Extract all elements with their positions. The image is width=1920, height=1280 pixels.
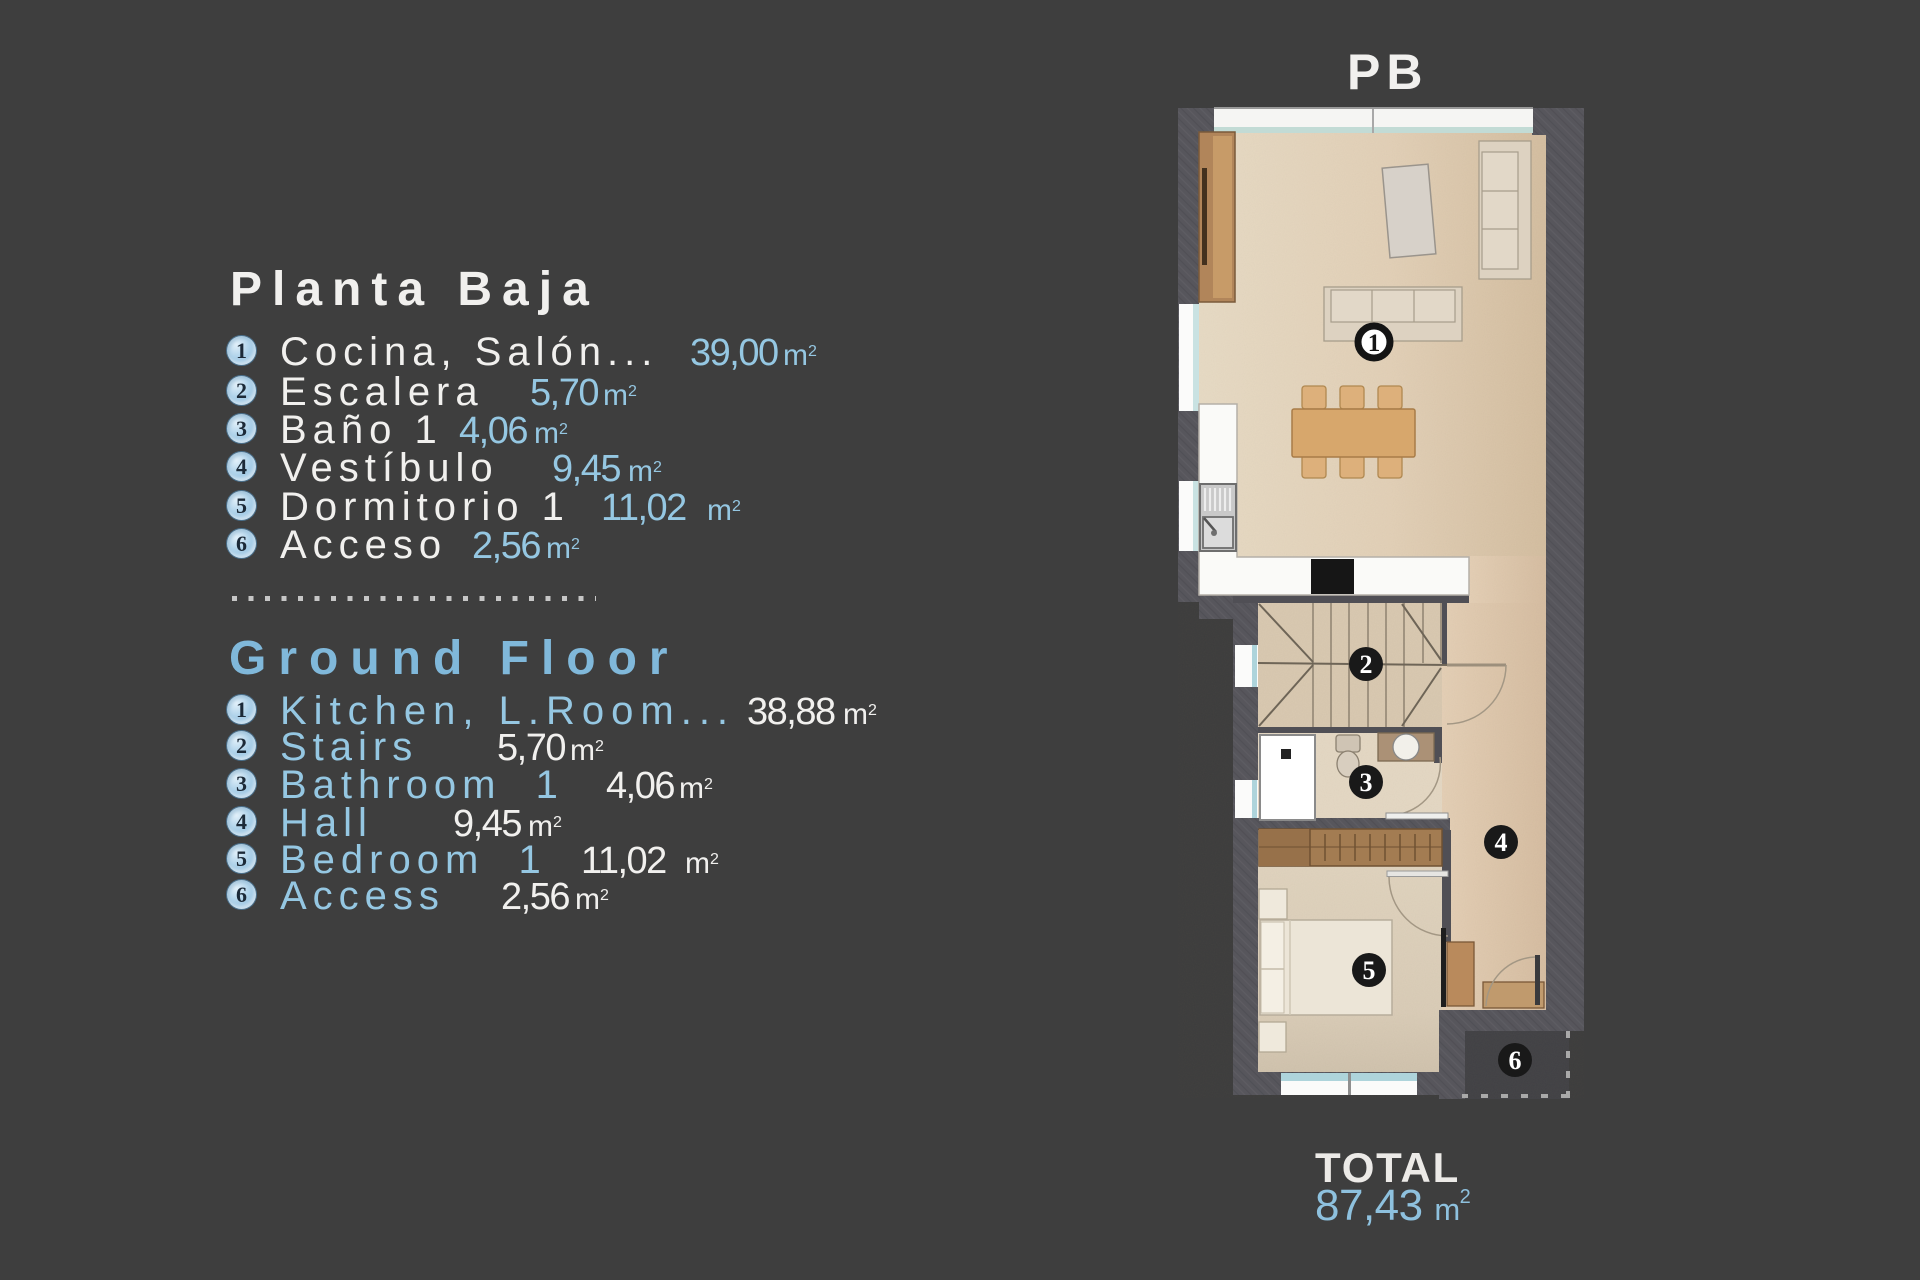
svg-text:5: 5 [1363, 956, 1376, 985]
svg-text:4: 4 [1495, 828, 1508, 857]
svg-text:3: 3 [1360, 768, 1373, 797]
svg-text:2: 2 [1360, 650, 1373, 679]
svg-text:6: 6 [1509, 1046, 1522, 1075]
svg-text:1: 1 [1368, 330, 1381, 357]
